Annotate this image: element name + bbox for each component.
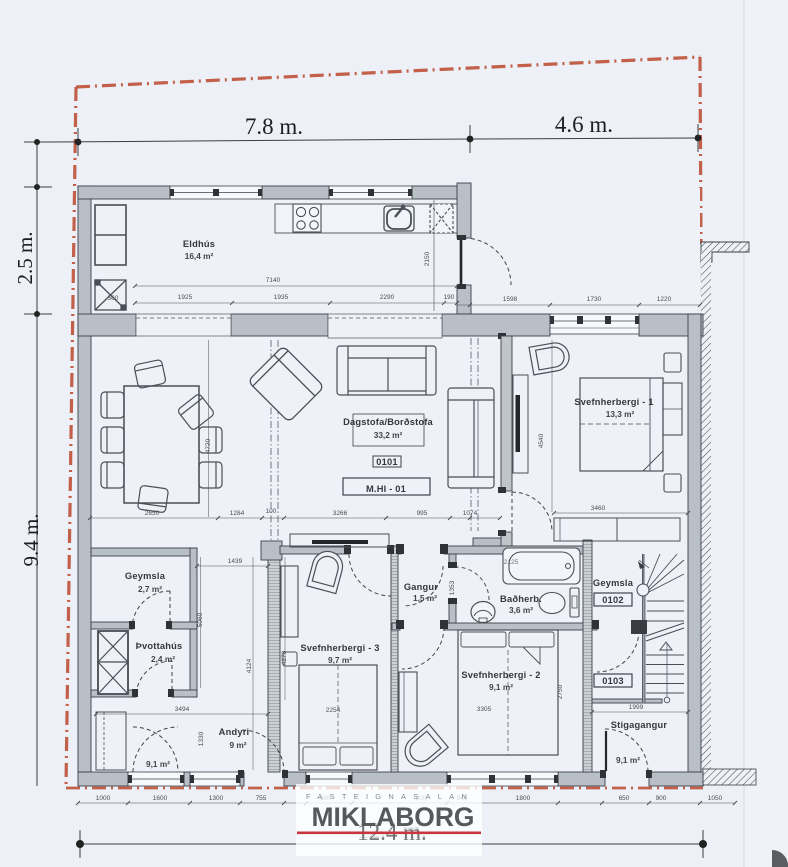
svg-text:Andyri: Andyri (219, 727, 250, 737)
svg-text:2290: 2290 (380, 294, 395, 301)
svg-text:4720: 4720 (205, 438, 212, 453)
svg-text:Geymsla: Geymsla (125, 571, 166, 581)
svg-text:M.HI - 01: M.HI - 01 (366, 484, 406, 494)
svg-text:755: 755 (256, 795, 267, 802)
svg-text:1,5 m²: 1,5 m² (413, 593, 437, 603)
svg-text:9,1 m²: 9,1 m² (489, 682, 513, 692)
svg-text:3,6 m²: 3,6 m² (509, 605, 533, 615)
svg-text:4124: 4124 (246, 658, 253, 673)
svg-text:9,1 m²: 9,1 m² (616, 755, 640, 765)
svg-text:3494: 3494 (175, 706, 190, 713)
svg-text:1000: 1000 (96, 795, 111, 802)
svg-text:2254: 2254 (326, 707, 341, 714)
svg-text:3266: 3266 (333, 510, 348, 517)
svg-text:Dagstofa/Borðstofa: Dagstofa/Borðstofa (343, 417, 433, 427)
svg-text:2,7 m²: 2,7 m² (138, 584, 162, 594)
svg-text:1600: 1600 (153, 795, 168, 802)
svg-text:2150: 2150 (424, 251, 431, 266)
svg-text:1800: 1800 (516, 795, 531, 802)
svg-text:4.6 m.: 4.6 m. (555, 112, 613, 137)
svg-text:560: 560 (108, 295, 119, 302)
svg-text:33,2 m²: 33,2 m² (374, 430, 403, 440)
svg-text:9.4 m.: 9.4 m. (19, 513, 43, 566)
svg-text:1284: 1284 (230, 510, 245, 517)
svg-text:Baðherb.: Baðherb. (500, 594, 542, 604)
svg-text:1074: 1074 (463, 510, 478, 517)
svg-text:1300: 1300 (209, 795, 224, 802)
svg-text:4270: 4270 (281, 650, 288, 665)
svg-text:1050: 1050 (708, 795, 723, 802)
svg-text:1220: 1220 (657, 296, 672, 303)
svg-text:190: 190 (444, 294, 455, 301)
svg-text:2125: 2125 (504, 559, 519, 566)
svg-text:5060: 5060 (197, 612, 204, 627)
svg-text:Þvottahús: Þvottahús (136, 641, 183, 651)
svg-text:9 m²: 9 m² (229, 740, 246, 750)
svg-text:1330: 1330 (198, 731, 205, 746)
svg-text:1353: 1353 (449, 580, 456, 595)
svg-text:1439: 1439 (228, 558, 243, 565)
svg-text:1730: 1730 (587, 296, 602, 303)
svg-text:Gangur: Gangur (404, 582, 438, 592)
svg-text:FASTEIGNASALAN: FASTEIGNASALAN (306, 792, 472, 801)
svg-text:1598: 1598 (503, 296, 518, 303)
svg-text:16,4 m²: 16,4 m² (185, 251, 214, 261)
svg-text:4540: 4540 (538, 433, 545, 448)
svg-text:0103: 0103 (602, 676, 623, 686)
svg-text:3305: 3305 (477, 706, 492, 713)
svg-text:900: 900 (656, 795, 667, 802)
svg-text:650: 650 (619, 795, 630, 802)
svg-text:2.5 m.: 2.5 m. (13, 231, 37, 284)
svg-text:1999: 1999 (629, 704, 644, 711)
svg-text:7140: 7140 (266, 277, 281, 284)
svg-text:1935: 1935 (274, 294, 289, 301)
svg-text:0101: 0101 (376, 457, 397, 467)
svg-text:2650: 2650 (145, 510, 160, 517)
svg-text:Svefnherbergi - 2: Svefnherbergi - 2 (461, 670, 540, 680)
svg-text:100: 100 (266, 508, 277, 515)
svg-text:Stigagangur: Stigagangur (611, 720, 668, 730)
svg-text:2750: 2750 (557, 684, 564, 699)
svg-text:2,4 m²: 2,4 m² (151, 654, 175, 664)
svg-text:3460: 3460 (591, 505, 606, 512)
svg-text:Svefnherbergi - 3: Svefnherbergi - 3 (300, 643, 379, 653)
svg-text:9,7 m²: 9,7 m² (328, 655, 352, 665)
svg-text:13,3 m²: 13,3 m² (606, 409, 635, 419)
svg-text:1925: 1925 (178, 294, 193, 301)
svg-text:0102: 0102 (602, 595, 623, 605)
svg-text:7.8 m.: 7.8 m. (245, 114, 303, 139)
svg-text:Geymsla: Geymsla (593, 578, 634, 588)
svg-text:Eldhús: Eldhús (183, 239, 215, 249)
svg-text:Svefnherbergi - 1: Svefnherbergi - 1 (574, 397, 653, 407)
svg-text:9,1 m²: 9,1 m² (146, 759, 170, 769)
svg-text:995: 995 (417, 510, 428, 517)
